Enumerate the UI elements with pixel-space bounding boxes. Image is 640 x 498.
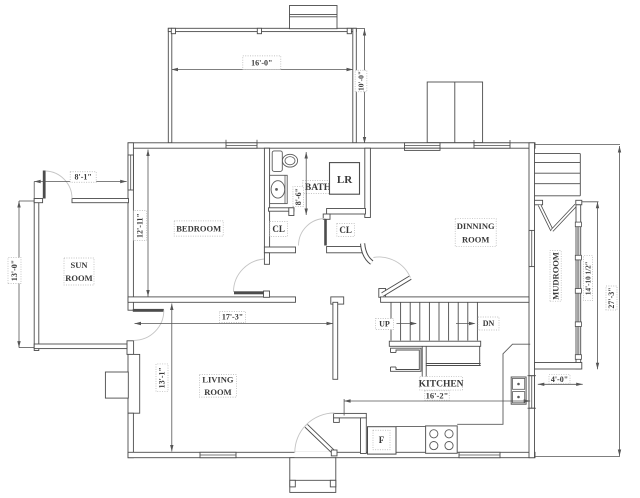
svg-text:BATH: BATH	[305, 183, 332, 193]
svg-text:4'-0": 4'-0"	[551, 375, 568, 384]
svg-text:13'-0": 13'-0"	[10, 260, 19, 281]
svg-text:DN: DN	[483, 319, 495, 328]
svg-text:ROOM: ROOM	[65, 273, 92, 283]
svg-text:UP: UP	[379, 320, 390, 329]
svg-text:14'-10 1/2": 14'-10 1/2"	[585, 261, 593, 295]
svg-text:27'-3": 27'-3"	[607, 287, 616, 308]
svg-text:8'-1": 8'-1"	[75, 173, 92, 182]
svg-text:13'-1": 13'-1"	[158, 367, 167, 388]
svg-text:CL: CL	[339, 225, 352, 235]
svg-text:BEDROOM: BEDROOM	[176, 223, 221, 233]
svg-text:LR: LR	[337, 174, 353, 186]
svg-text:F: F	[379, 435, 385, 445]
svg-text:SUN: SUN	[70, 260, 88, 270]
svg-text:CL: CL	[272, 224, 285, 234]
svg-text:ROOM: ROOM	[204, 387, 231, 397]
svg-text:16'-2": 16'-2"	[426, 390, 449, 400]
svg-text:17'-3": 17'-3"	[222, 313, 243, 322]
svg-text:LIVING: LIVING	[202, 375, 234, 385]
svg-text:MUDROOM: MUDROOM	[550, 252, 560, 300]
svg-text:16'-0": 16'-0"	[251, 58, 272, 67]
svg-text:ROOM: ROOM	[462, 234, 489, 244]
svg-text:KITCHEN: KITCHEN	[419, 380, 464, 390]
svg-text:12'-11": 12'-11"	[136, 213, 145, 238]
svg-text:8'-6": 8'-6"	[294, 188, 303, 205]
svg-text:10'-0": 10'-0"	[357, 71, 366, 91]
svg-text:DINNING: DINNING	[457, 221, 495, 231]
